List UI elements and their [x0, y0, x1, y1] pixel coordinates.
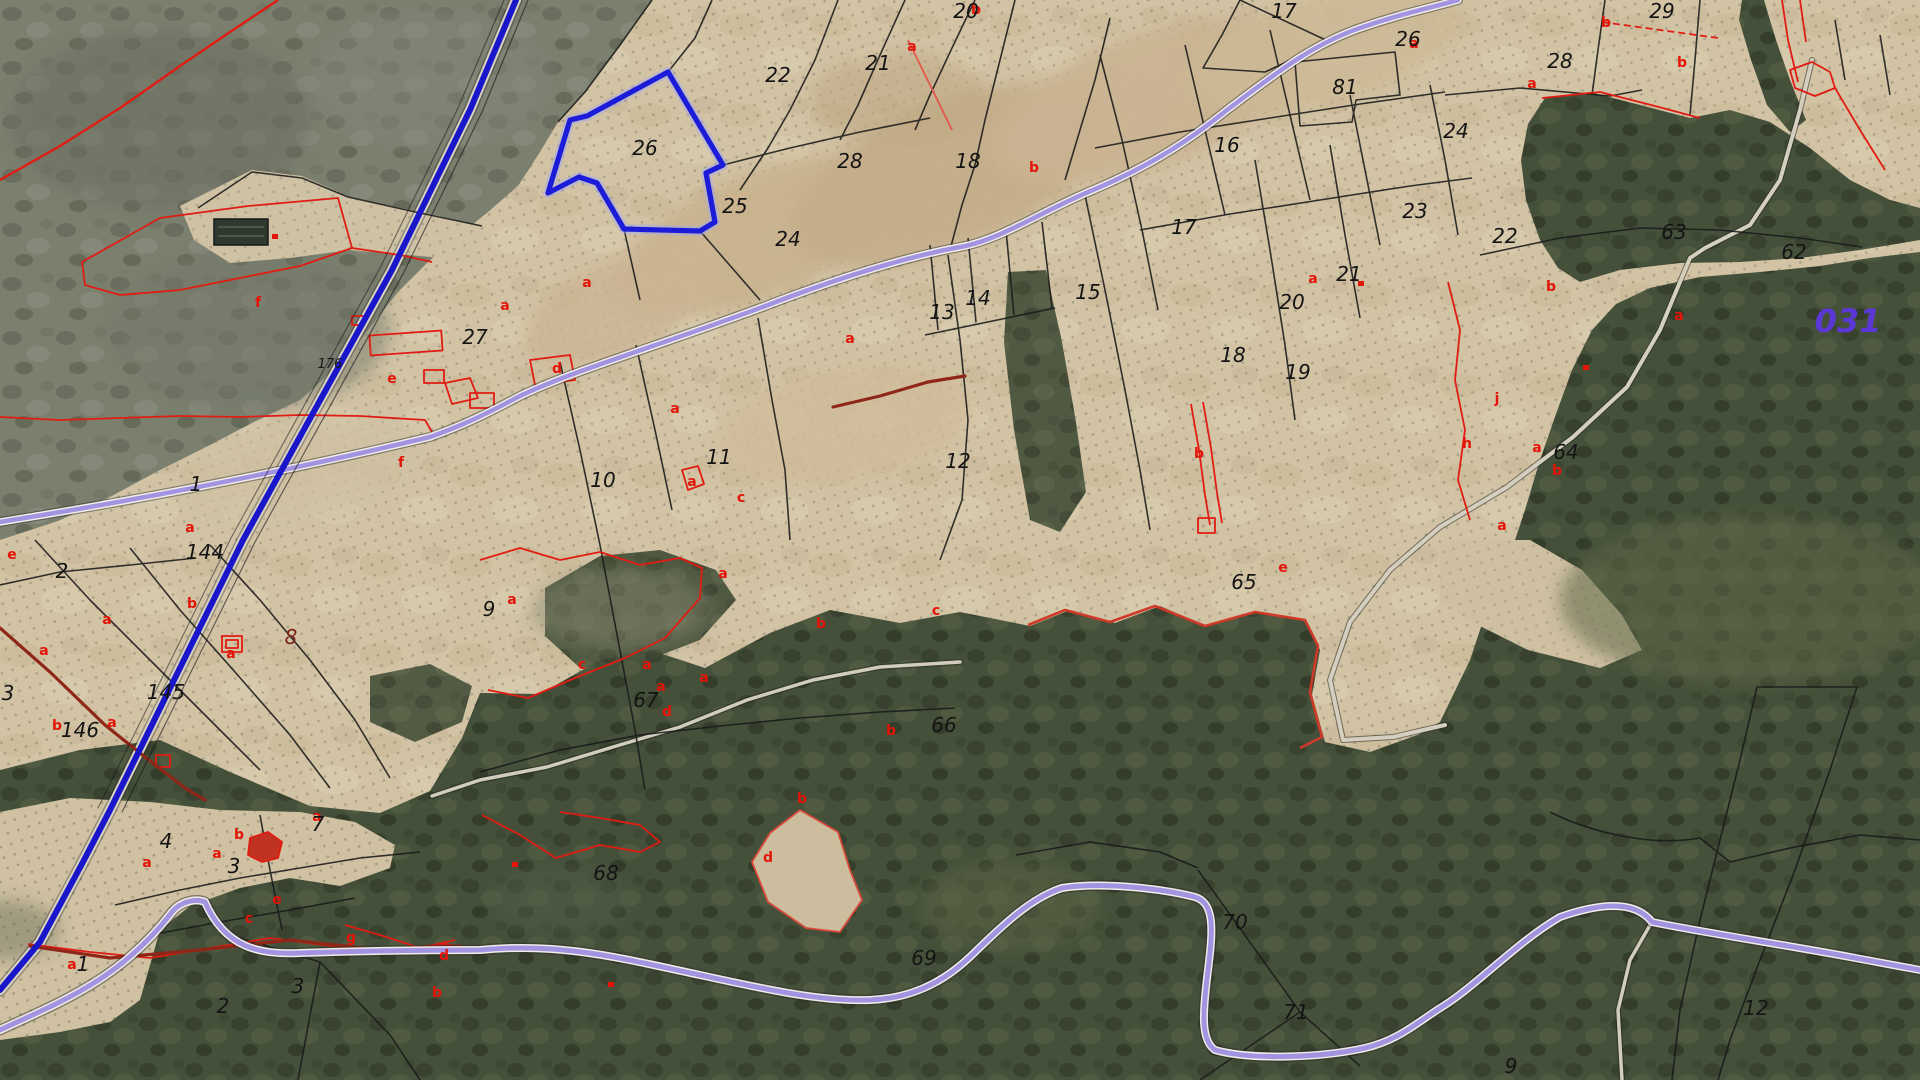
subparcel-letter-label: a — [1532, 440, 1541, 456]
subparcel-letter-label: a — [699, 670, 708, 686]
parcel-number-label: 4 — [160, 829, 173, 853]
subparcel-letter-label: a — [142, 855, 151, 871]
parcel-number-label: 12 — [945, 449, 970, 473]
parcel-number-label: 15 — [1075, 280, 1100, 304]
red-building-marker — [512, 862, 518, 867]
parcel-number-label: 21 — [1336, 262, 1361, 286]
subparcel-letter-label: a — [687, 474, 696, 490]
reservoir-structure — [214, 219, 268, 245]
parcel-number-label: 23 — [1402, 199, 1427, 223]
parcel-number-label: 1 — [190, 472, 203, 496]
parcel-number-label: 64 — [1553, 440, 1578, 464]
subparcel-letter-label: e — [272, 892, 282, 908]
subparcel-letter-label: a — [1308, 271, 1317, 287]
subparcel-letter-label: d — [552, 361, 562, 377]
subparcel-letter-label: a — [845, 331, 854, 347]
parcel-number-label: 17 — [1271, 0, 1297, 23]
subparcel-letter-label: b — [886, 723, 896, 739]
parcel-number-label: 12 — [1743, 996, 1768, 1020]
parcel-number-label: 68 — [593, 861, 618, 885]
subparcel-letter-label: b — [1194, 446, 1204, 462]
subparcel-letter-label: f — [398, 455, 405, 471]
parcel-number-label: 145 — [147, 680, 185, 704]
parcel-number-label: 9 — [1505, 1054, 1518, 1078]
parcel-number-label: 2 — [217, 994, 230, 1018]
subparcel-letter-label: f — [255, 295, 262, 311]
subparcel-letter-label: a — [582, 275, 591, 291]
subparcel-letter-label: e — [1278, 560, 1288, 576]
parcel-number-label: 25 — [722, 194, 747, 218]
subparcel-letter-label: b — [1546, 279, 1556, 295]
parcel-number-label: 146 — [61, 718, 99, 742]
subparcel-letter-label: a — [907, 39, 916, 55]
parcel-number-label: 71 — [1283, 1000, 1308, 1024]
subparcel-letter-label: b — [234, 827, 244, 843]
parcel-number-label: 20 — [953, 0, 978, 23]
parcel-number-label: 20 — [1279, 290, 1304, 314]
subparcel-letter-label: a — [1527, 76, 1536, 92]
parcel-number-label: 16 — [1214, 133, 1239, 157]
zone-code-text: 031 — [1815, 302, 1882, 340]
parcel-number-label: 21 — [865, 51, 890, 75]
subparcel-letter-label: d — [439, 948, 449, 964]
subparcel-letter-label: b — [1601, 15, 1611, 31]
parcel-number-label: 3 — [2, 681, 15, 705]
parcel-number-label: 22 — [1492, 224, 1517, 248]
parcel-number-label: 18 — [955, 149, 980, 173]
subparcel-letter-label: c — [578, 657, 586, 673]
parcel-number-label: 67 — [633, 688, 659, 712]
parcel-number-label: 11 — [706, 445, 731, 469]
parcel-number-label: 10 — [590, 468, 615, 492]
subparcel-letter-label: a — [185, 520, 194, 536]
map-viewport[interactable]: baababbfaefaadaacababjhabaeeababaaaabaac… — [0, 0, 1920, 1080]
parcel-number-label: 17 — [1171, 215, 1197, 239]
parcel-number-label: 144 — [186, 540, 224, 564]
parcel-number-label: 24 — [775, 227, 800, 251]
subparcel-letter-label: c — [932, 603, 940, 619]
parcel-number-label: 24 — [1443, 119, 1468, 143]
parcel-number-label: 29 — [1649, 0, 1674, 23]
subparcel-letter-label: a — [212, 846, 221, 862]
parcel-number-label: 8 — [285, 625, 298, 649]
parcel-number-label: 66 — [931, 713, 956, 737]
parcel-number-label: 28 — [1547, 49, 1572, 73]
subparcel-letter-label: b — [1029, 160, 1039, 176]
subparcel-letter-label: d — [662, 704, 672, 720]
parcel-number-label: 81 — [1332, 75, 1357, 99]
subparcel-letter-label: a — [39, 643, 48, 659]
red-building-marker — [608, 982, 614, 987]
satellite-cadastral-canvas: baababbfaefaadaacababjhabaeeababaaaabaac… — [0, 0, 1920, 1080]
subparcel-letter-label: e — [387, 371, 397, 387]
red-building-marker — [272, 234, 278, 239]
parcel-number-label: 65 — [1231, 570, 1256, 594]
subparcel-letter-label: a — [1497, 518, 1506, 534]
parcel-number-label: 13 — [929, 300, 954, 324]
subparcel-letter-label: j — [1494, 391, 1500, 407]
zone-code-label: 031 — [1815, 302, 1882, 340]
subparcel-letter-label: a — [642, 657, 651, 673]
parcel-number-label: 2 — [56, 559, 69, 583]
subparcel-letter-label: a — [670, 401, 679, 417]
subparcel-letter-label: a — [102, 612, 111, 628]
subparcel-letter-label: b — [432, 985, 442, 1001]
parcel-number-label: 7 — [312, 812, 325, 836]
subparcel-letter-label: b — [1677, 55, 1687, 71]
parcel-number-label: 26 — [1395, 27, 1420, 51]
parcel-number-label: 1 — [77, 952, 90, 976]
subparcel-letter-label: a — [67, 957, 76, 973]
parcel-number-label: 28 — [837, 149, 862, 173]
parcel-number-label: 3 — [228, 854, 241, 878]
subparcel-letter-label: a — [507, 592, 516, 608]
subparcel-letter-label: b — [1552, 463, 1562, 479]
parcel-number-label: 18 — [1220, 343, 1245, 367]
parcel-number-label: 19 — [1285, 360, 1310, 384]
subparcel-letter-label: a — [107, 715, 116, 731]
parcel-number-label: 22 — [765, 63, 790, 87]
parcel-number-label: 62 — [1781, 240, 1806, 264]
parcel-number-label: 70 — [1222, 910, 1247, 934]
parcel-number-label: 69 — [911, 946, 936, 970]
subparcel-letter-label: b — [797, 791, 807, 807]
subparcel-letter-label: b — [187, 596, 197, 612]
subparcel-letter-label: c — [737, 490, 745, 506]
subparcel-letter-label: c — [245, 911, 253, 927]
parcel-number-label: 14 — [965, 286, 990, 310]
subparcel-letter-label: a — [226, 646, 235, 662]
parcel-number-label: 63 — [1661, 220, 1686, 244]
subparcel-letter-label: g — [346, 930, 356, 946]
subparcel-letter-label: a — [1674, 308, 1683, 324]
parcel-number-label: 3 — [292, 974, 305, 998]
subparcel-letter-label: e — [7, 547, 17, 563]
subparcel-letter-label: a — [500, 298, 509, 314]
red-building-marker — [1583, 365, 1589, 370]
subparcel-letter-label: a — [718, 566, 727, 582]
parcel-number-label: 9 — [483, 597, 496, 621]
parcel-number-label: 26 — [632, 136, 657, 160]
parcel-number-label: 176 — [318, 357, 343, 372]
parcel-number-label: 27 — [462, 325, 488, 349]
subparcel-letter-label: d — [763, 850, 773, 866]
subparcel-letter-label: b — [816, 616, 826, 632]
subparcel-letter-label: h — [1462, 436, 1472, 452]
